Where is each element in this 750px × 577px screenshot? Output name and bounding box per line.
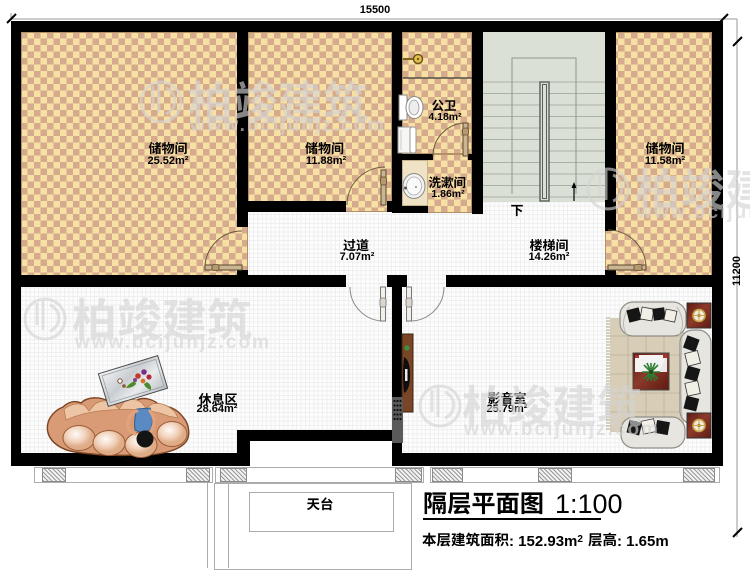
- svg-text:www.bcijunjz.com: www.bcijunjz.com: [463, 419, 660, 440]
- svg-text:www.bcijunjz.com: www.bcijunjz.com: [636, 202, 750, 223]
- svg-text:www.bcijunjz.com: www.bcijunjz.com: [189, 115, 386, 136]
- svg-text:www.bcijunjz.com: www.bcijunjz.com: [74, 332, 271, 353]
